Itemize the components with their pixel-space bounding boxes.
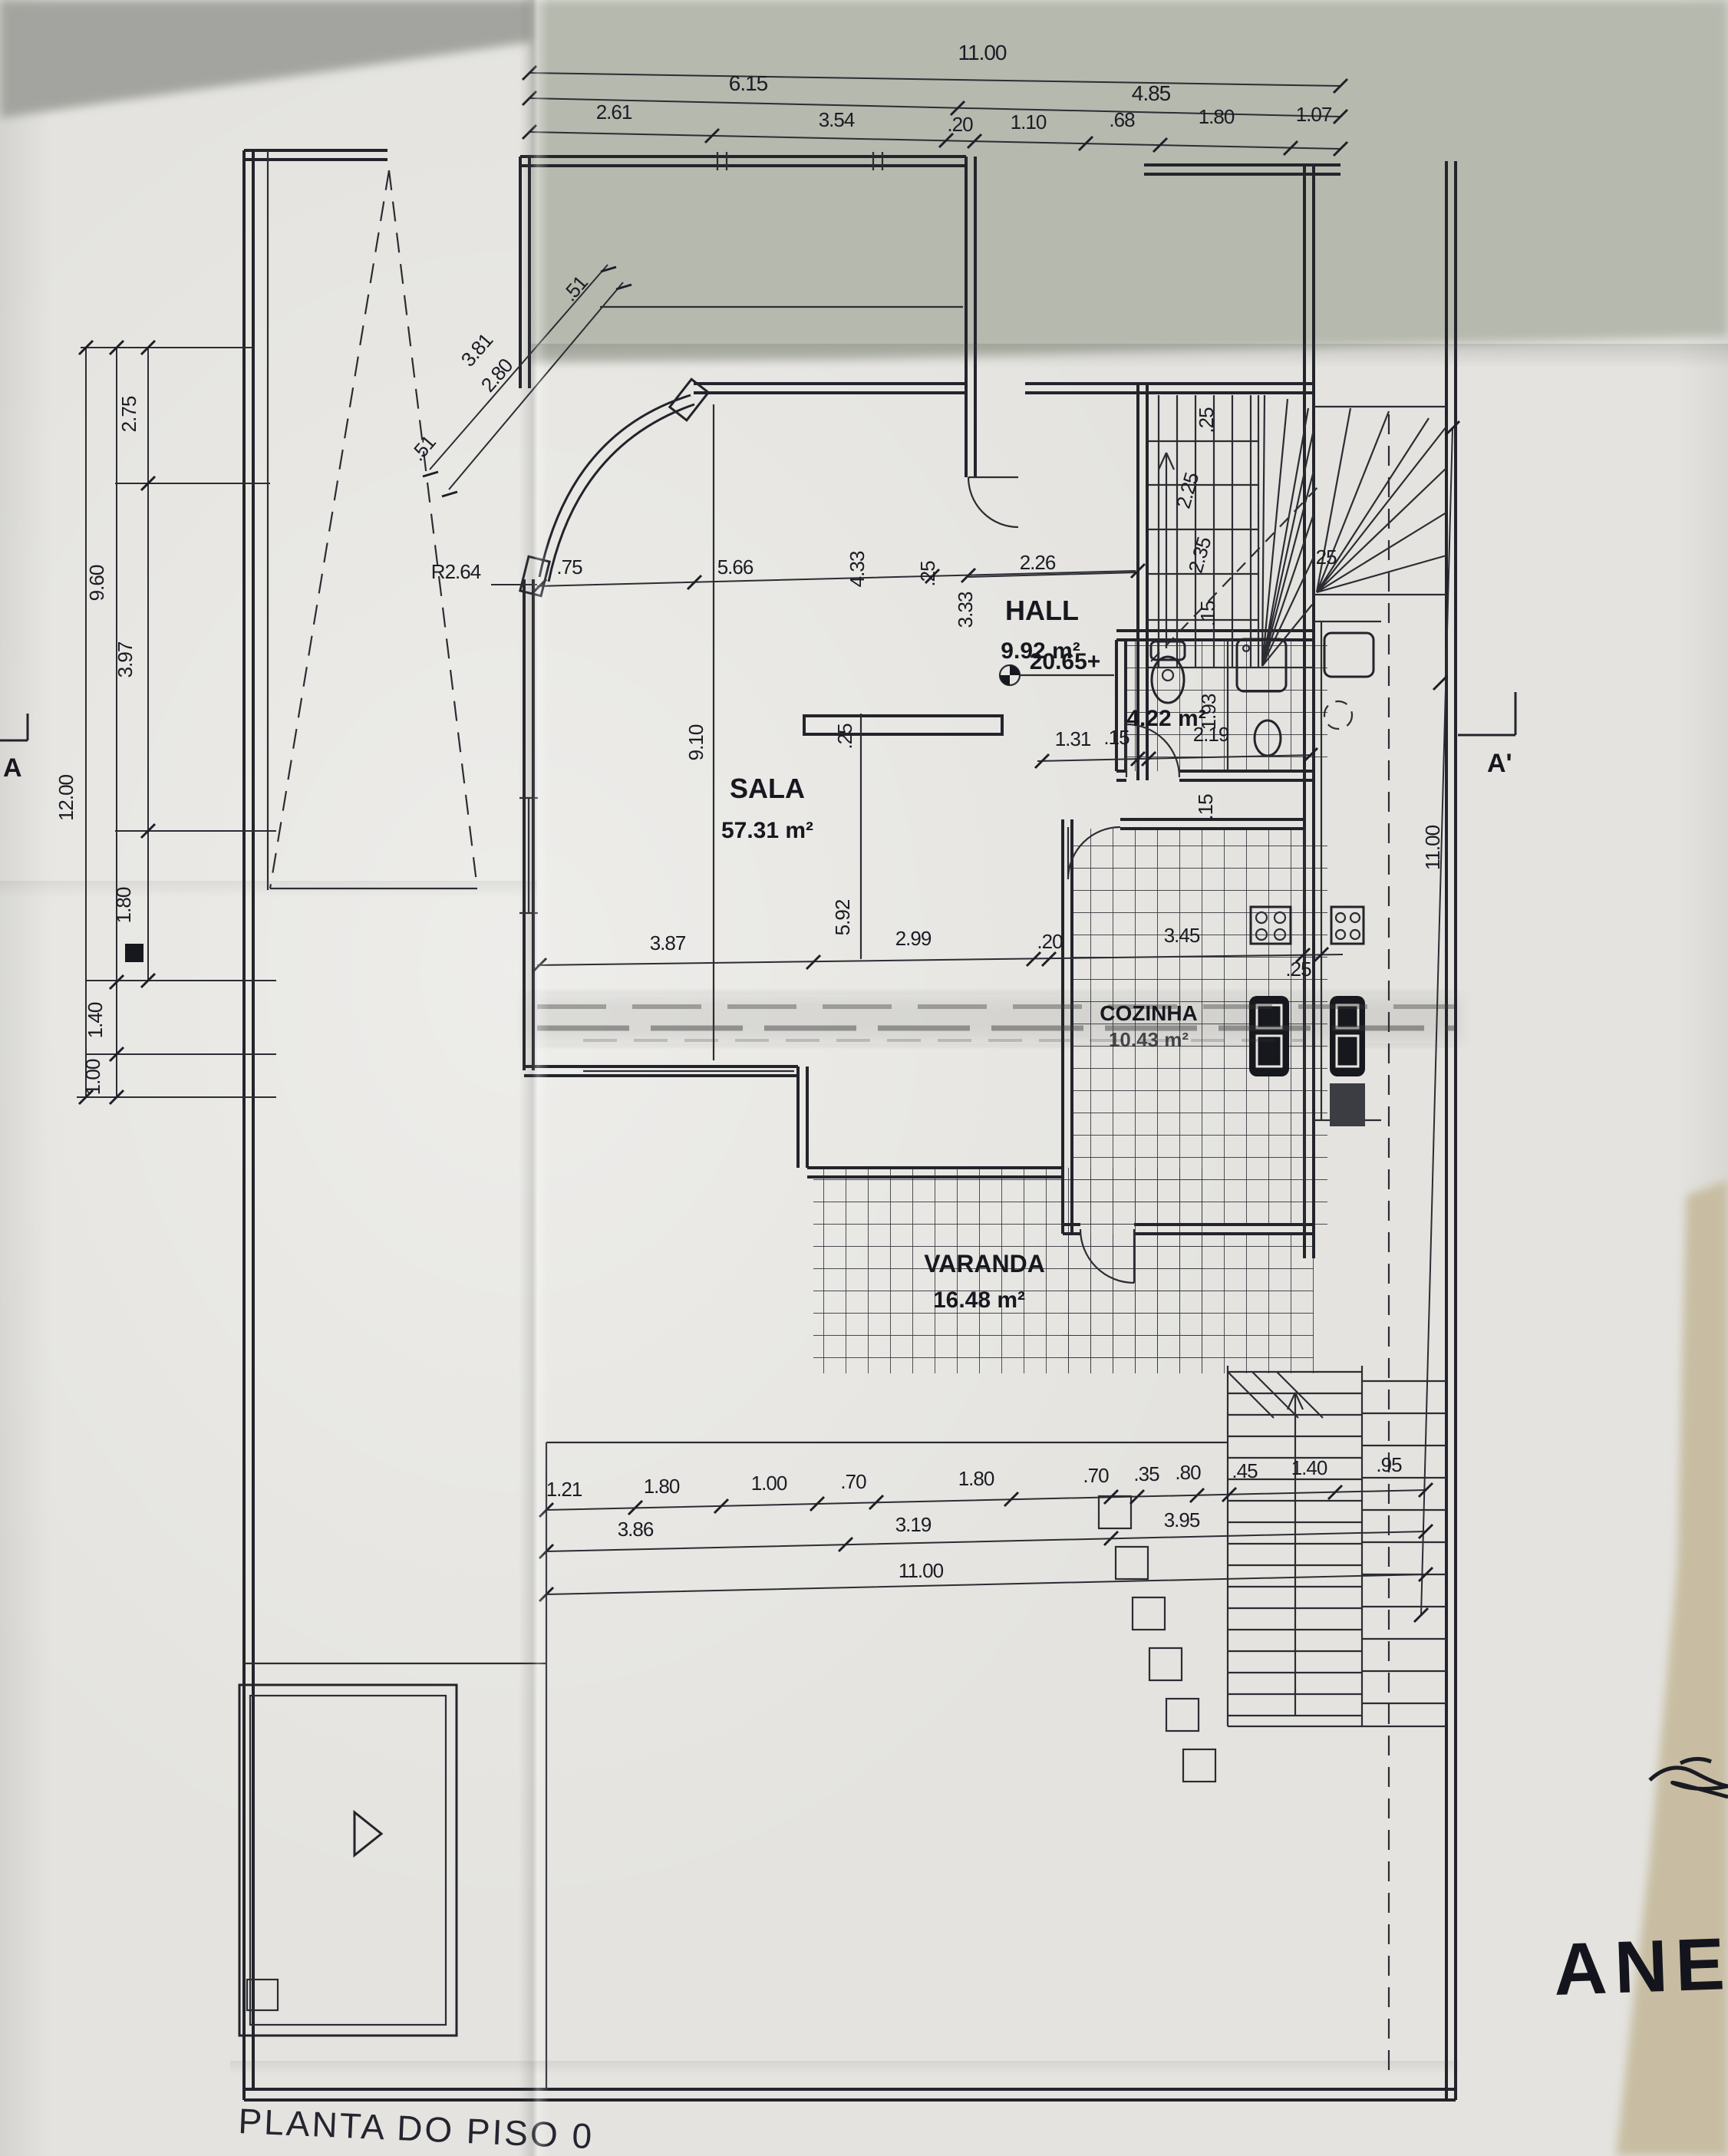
annex-handwriting: ANEXO bbox=[1552, 1918, 1728, 2011]
dim-label: 2.61 bbox=[596, 101, 632, 124]
interior-stairs bbox=[1149, 395, 1321, 668]
section-a-prime-label: A' bbox=[1487, 749, 1512, 778]
paper-crease-top bbox=[529, 344, 1728, 374]
dim-label: 2.26 bbox=[1020, 551, 1056, 574]
dim-label: .35 bbox=[1133, 1462, 1159, 1485]
dim-label: .70 bbox=[1083, 1464, 1109, 1487]
dim-label: 2.99 bbox=[895, 927, 932, 950]
dim-label: 2.35 bbox=[1184, 534, 1216, 575]
dim-label: 1.40 bbox=[1291, 1456, 1327, 1479]
shadow-region-top-left bbox=[0, 0, 533, 118]
dim-label: .15 bbox=[1103, 726, 1129, 749]
floor-plan-svg: A A' 11.00 6.15 4.85 2.61 3.54 .20 1.10 … bbox=[0, 0, 1728, 2156]
room-area-varanda: 16.48 m² bbox=[933, 1287, 1025, 1313]
dim-label: .45 bbox=[1232, 1459, 1258, 1482]
dim-label: 1.21 bbox=[546, 1478, 582, 1501]
dim-label: .20 bbox=[1037, 930, 1063, 953]
dim-label: 3.19 bbox=[895, 1513, 932, 1536]
shadow-region-top-right bbox=[533, 0, 1728, 362]
stair-direction-arrow bbox=[1159, 453, 1174, 648]
dim-label: 1.40 bbox=[84, 1002, 107, 1038]
dim-label: .51 bbox=[406, 430, 440, 465]
dim-label: 1.07 bbox=[1296, 103, 1332, 126]
dim-label: 3.54 bbox=[819, 108, 855, 131]
dim-label: .75 bbox=[556, 555, 582, 579]
dim-label: .68 bbox=[1109, 108, 1135, 131]
room-area-sala: 57.31 m² bbox=[721, 818, 813, 843]
room-label-cozinha: COZINHA bbox=[1100, 1001, 1198, 1025]
annex-basin bbox=[1324, 701, 1352, 729]
room-label-sala: SALA bbox=[730, 773, 805, 804]
pool-triangle-marker bbox=[355, 1812, 381, 1855]
room-label-hall: HALL bbox=[1005, 595, 1079, 626]
room-area-cozinha: 10.43 m² bbox=[1109, 1028, 1189, 1051]
table-edge-beige bbox=[1616, 1180, 1728, 2156]
dim-label: 1.80 bbox=[1199, 105, 1235, 128]
dim-label: 1.80 bbox=[958, 1467, 994, 1490]
dim-label: 2.75 bbox=[117, 396, 140, 432]
dim-label: 6.15 bbox=[729, 71, 768, 95]
section-a-elbow bbox=[0, 714, 28, 740]
dim-label: 3.45 bbox=[1164, 924, 1200, 947]
dim-label: 5.66 bbox=[717, 555, 754, 579]
room-label-varanda: VARANDA bbox=[924, 1250, 1045, 1277]
dim-label: 11.00 bbox=[899, 1559, 944, 1582]
dim-label: 3.95 bbox=[1164, 1508, 1200, 1531]
annex-shower bbox=[1324, 633, 1373, 677]
paper-crease-vertical bbox=[519, 0, 549, 2156]
dim-label: 3.87 bbox=[650, 931, 686, 954]
dim-label: 3.97 bbox=[114, 641, 137, 677]
paper-crease-bottom bbox=[230, 2061, 1458, 2075]
dim-label: 1.10 bbox=[1011, 110, 1047, 134]
annex-appliance bbox=[1330, 1083, 1365, 1126]
dim-label: 3.33 bbox=[954, 592, 977, 628]
dim-label: 9.10 bbox=[684, 724, 707, 760]
curve-post-top bbox=[670, 379, 708, 420]
dim-label: 11.00 bbox=[958, 41, 1007, 64]
front-door bbox=[968, 477, 1018, 527]
section-a-label: A bbox=[3, 753, 22, 783]
dim-label: .15 bbox=[1194, 794, 1217, 820]
paper-crease-mid bbox=[0, 881, 537, 898]
dim-label: 1.00 bbox=[751, 1472, 787, 1495]
dim-label: 11.00 bbox=[1421, 825, 1444, 870]
carport-dashed-projection bbox=[270, 170, 477, 888]
dim-label: .70 bbox=[840, 1470, 866, 1493]
dim-label: .20 bbox=[947, 113, 973, 136]
section-a-prime-elbow bbox=[1458, 692, 1515, 735]
dim-label: 9.60 bbox=[85, 565, 108, 601]
exterior-stair-bottom bbox=[1228, 1366, 1446, 1726]
dim-label: .25 bbox=[1195, 407, 1218, 434]
dim-label-radius: R2.64 bbox=[431, 560, 481, 583]
room-area-wc: 4.22 m² bbox=[1126, 706, 1205, 731]
dim-label: .25 bbox=[1285, 958, 1311, 981]
pool bbox=[239, 1685, 457, 2036]
scanned-floor-plan-photo: { "title": "PLANTA DO PISO 0", "handwrit… bbox=[0, 0, 1728, 2156]
dim-label: 3.86 bbox=[618, 1518, 654, 1541]
dim-label: .25 bbox=[833, 724, 856, 750]
photo-background bbox=[0, 0, 1728, 2156]
post-marker bbox=[125, 944, 143, 962]
varanda-tiles-right bbox=[1063, 1234, 1314, 1373]
dim-label: .95 bbox=[1376, 1453, 1402, 1476]
dim-label: 1.80 bbox=[644, 1475, 680, 1498]
dim-label: .25 bbox=[916, 561, 939, 587]
dim-label: 4.33 bbox=[846, 551, 869, 587]
dim-label: .25 bbox=[1311, 546, 1337, 569]
dim-label: .15 bbox=[1196, 601, 1219, 627]
dim-label: .80 bbox=[1175, 1461, 1201, 1484]
dim-label: 2.25 bbox=[1172, 470, 1204, 511]
dim-label: 1.00 bbox=[81, 1059, 104, 1095]
dim-label: 4.85 bbox=[1132, 81, 1171, 105]
dim-label: 12.00 bbox=[54, 774, 77, 821]
level-label: 20.65+ bbox=[1030, 649, 1101, 674]
dim-label: 5.92 bbox=[831, 899, 854, 935]
dim-label: 1.31 bbox=[1055, 727, 1091, 750]
